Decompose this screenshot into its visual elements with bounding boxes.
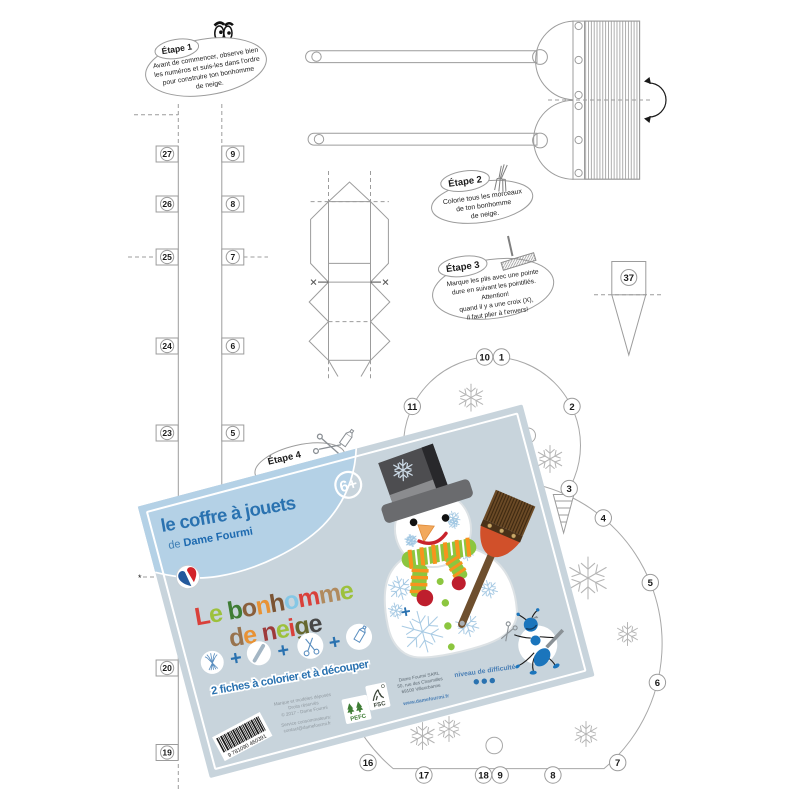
svg-text:37: 37	[624, 273, 635, 284]
svg-text:3: 3	[567, 484, 572, 495]
svg-text:19: 19	[162, 748, 172, 758]
svg-text:23: 23	[162, 428, 172, 438]
svg-text:20: 20	[162, 663, 172, 673]
svg-text:9: 9	[230, 149, 235, 159]
svg-text:6: 6	[230, 341, 235, 351]
svg-text:*: *	[138, 573, 142, 583]
svg-text:24: 24	[162, 341, 172, 351]
svg-text:25: 25	[162, 252, 172, 262]
svg-text:5: 5	[230, 428, 235, 438]
svg-text:8: 8	[550, 770, 555, 781]
svg-text:1: 1	[499, 352, 505, 363]
svg-text:8: 8	[230, 199, 235, 209]
svg-text:16: 16	[363, 758, 374, 769]
svg-text:10: 10	[479, 352, 490, 363]
svg-text:7: 7	[615, 758, 620, 769]
svg-text:5: 5	[648, 578, 654, 589]
svg-text:9: 9	[498, 770, 503, 781]
svg-text:27: 27	[162, 149, 172, 159]
svg-text:7: 7	[230, 252, 235, 262]
svg-text:11: 11	[407, 402, 418, 413]
svg-text:6: 6	[655, 678, 660, 689]
svg-text:18: 18	[478, 770, 489, 781]
svg-text:17: 17	[419, 770, 430, 781]
svg-text:4: 4	[601, 513, 607, 524]
svg-text:2: 2	[569, 402, 574, 413]
svg-text:26: 26	[162, 199, 172, 209]
